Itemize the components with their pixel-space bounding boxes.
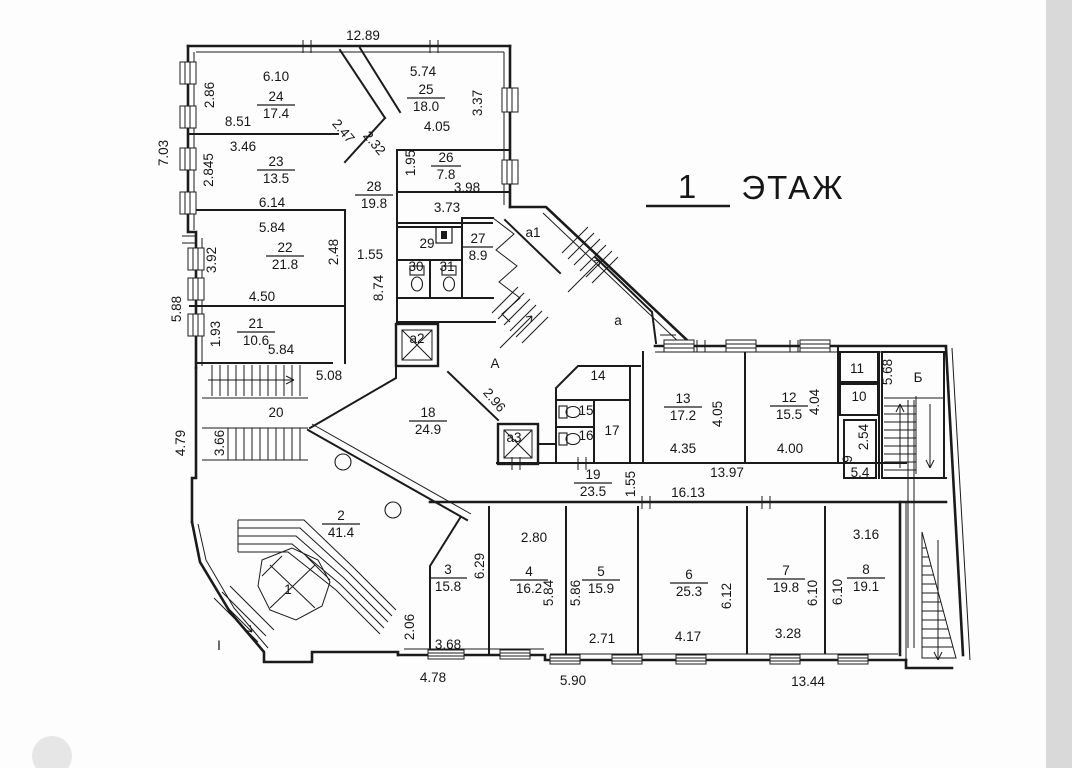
external-stair bbox=[922, 532, 956, 660]
dim-label: 3.92 bbox=[204, 247, 219, 273]
room-number-label: 13 bbox=[675, 391, 690, 406]
room-number-label: 19 bbox=[585, 467, 600, 482]
dim-label: 2.71 bbox=[589, 631, 615, 646]
scan-smudge bbox=[32, 736, 72, 768]
room-area-label: 19.8 bbox=[773, 580, 799, 595]
room-number-label: 8 bbox=[862, 562, 870, 577]
dim-label: 1.93 bbox=[208, 321, 223, 347]
room-number-label: 21 bbox=[248, 316, 263, 331]
room-number-label: 15 bbox=[578, 403, 593, 418]
room-area-label: 10.6 bbox=[243, 333, 269, 348]
dim-label: 4.17 bbox=[675, 629, 701, 644]
toilet-16 bbox=[559, 433, 580, 445]
dim-label: 4.79 bbox=[173, 430, 188, 456]
dim-label: 16.13 bbox=[671, 485, 705, 500]
room-number-label: 4 bbox=[525, 564, 533, 579]
dim-label: 2.845 bbox=[201, 153, 216, 187]
floor-word: ЭТАЖ bbox=[741, 169, 844, 206]
dim-label: 8.74 bbox=[371, 274, 386, 301]
dim-label: 2.86 bbox=[202, 82, 217, 108]
dim-label: 1.55 bbox=[623, 471, 638, 497]
room-number-label: а bbox=[614, 313, 622, 328]
dim-label: 5.74 bbox=[410, 64, 437, 79]
room-number-label: 7 bbox=[782, 563, 790, 578]
dim-label: 3.37 bbox=[470, 90, 485, 116]
room-number-label: а1 bbox=[525, 225, 540, 240]
room-number-label: 29 bbox=[419, 236, 434, 251]
dim-label: 13.97 bbox=[710, 465, 744, 480]
column bbox=[385, 502, 401, 518]
dim-label: 2.32 bbox=[360, 128, 388, 158]
bottom-wall-windows bbox=[428, 650, 868, 664]
dim-label: 1.55 bbox=[357, 247, 383, 262]
dim-label: 6.10 bbox=[830, 579, 845, 605]
dim-label: 3.28 bbox=[775, 626, 801, 641]
dim-label: 3.98 bbox=[454, 180, 480, 195]
room-number-label: 22 bbox=[277, 240, 292, 255]
dim-label: 3.68 bbox=[435, 637, 461, 652]
room-number-label: 12 bbox=[781, 390, 796, 405]
room-area-label: 16.2 bbox=[516, 581, 542, 596]
room-area-label: 17.4 bbox=[263, 106, 290, 121]
floor-number: 1 bbox=[678, 168, 698, 205]
dim-label: 8.51 bbox=[225, 114, 251, 129]
room-number-label: 18 bbox=[420, 405, 435, 420]
dim-label: 9 bbox=[840, 455, 855, 463]
stair-A bbox=[492, 227, 618, 348]
dim-label: 5.84 bbox=[541, 579, 556, 606]
dim-label: 13.44 bbox=[791, 674, 825, 689]
room-number-label: 5 bbox=[597, 564, 605, 579]
entrance-steps bbox=[214, 586, 274, 642]
room-number-label: 10 bbox=[851, 389, 866, 404]
dim-label: 2.48 bbox=[326, 239, 341, 265]
room-area-label: 17.2 bbox=[670, 408, 696, 423]
dim-label: 4.50 bbox=[249, 289, 275, 304]
toilet-15 bbox=[559, 406, 580, 418]
dim-label: 4.35 bbox=[670, 441, 696, 456]
room-number-label: 16 bbox=[578, 428, 593, 443]
dim-label: 2.54 bbox=[856, 423, 871, 450]
dim-label: 3.46 bbox=[230, 139, 256, 154]
room-number-label: Б bbox=[914, 370, 923, 385]
dim-label: 6.29 bbox=[472, 553, 487, 579]
room-number-label: а2 bbox=[409, 331, 424, 346]
room-area-label: 15.9 bbox=[588, 581, 614, 596]
room-number-label: 25 bbox=[418, 82, 433, 97]
sawtooth-wall bbox=[493, 218, 520, 322]
room-area-label: 7.8 bbox=[437, 167, 456, 182]
dim-label: 6.14 bbox=[259, 195, 286, 210]
room-number-label: 27 bbox=[470, 231, 485, 246]
room-number-label: I bbox=[217, 638, 221, 653]
room-area-label: 41.4 bbox=[328, 525, 355, 540]
left-wall-windows bbox=[180, 62, 204, 336]
room-area-label: 8.9 bbox=[469, 248, 488, 263]
dim-label: 2.96 bbox=[480, 385, 508, 415]
room-number-label: 6 bbox=[685, 567, 693, 582]
room-area-label: 19.1 bbox=[853, 579, 879, 594]
room-area-label: 18.0 bbox=[413, 99, 439, 114]
room-number-label: 17 bbox=[604, 423, 619, 438]
room-number-label: 30 bbox=[408, 259, 423, 274]
room-area-label: 15.5 bbox=[776, 407, 802, 422]
dim-label: 5.88 bbox=[169, 296, 184, 322]
room-number-label: 23 bbox=[268, 154, 283, 169]
dim-label: 5.84 bbox=[268, 342, 295, 357]
dim-label: 4.04 bbox=[807, 388, 822, 415]
dim-label: 6.10 bbox=[263, 69, 289, 84]
dim-label: 6.12 bbox=[719, 583, 734, 609]
dim-label: 5.4 bbox=[851, 465, 870, 480]
column bbox=[335, 454, 351, 470]
floor-plan-svg: 1 ЭТАЖ 12.896.105.748.514.053.466.143.98… bbox=[0, 0, 1072, 768]
dim-label: 7.03 bbox=[156, 140, 171, 166]
room-number-label: а3 bbox=[506, 430, 521, 445]
dim-label: 3.66 bbox=[212, 430, 227, 456]
room-number-label: 1 bbox=[284, 582, 292, 597]
wing-top-windows bbox=[664, 340, 830, 352]
dim-label: 12.89 bbox=[346, 28, 380, 43]
room-number-label: 28 bbox=[366, 179, 381, 194]
dim-label: 5.90 bbox=[560, 673, 586, 688]
dim-label: 3.73 bbox=[434, 200, 460, 215]
dim-label: 2.47 bbox=[329, 116, 357, 146]
dim-label: 1.95 bbox=[403, 150, 418, 176]
room-area-label: 21.8 bbox=[272, 257, 298, 272]
dim-label: 4.05 bbox=[710, 401, 725, 427]
dim-label: 2.06 bbox=[402, 614, 417, 640]
dim-label: 4.78 bbox=[420, 670, 446, 685]
dim-label: 5.68 bbox=[880, 359, 895, 385]
floor-plan-page: 1 ЭТАЖ 12.896.105.748.514.053.466.143.98… bbox=[0, 0, 1072, 768]
scan-edge-band bbox=[1046, 0, 1072, 768]
room-number-label: 31 bbox=[439, 259, 454, 274]
dim-label: 4.00 bbox=[777, 441, 803, 456]
room-area-label: 13.5 bbox=[263, 171, 289, 186]
room-number-label: 24 bbox=[268, 89, 284, 104]
partition-walls-layer bbox=[190, 48, 946, 653]
room-number-label: 14 bbox=[590, 368, 606, 383]
room-area-label: 15.8 bbox=[435, 579, 461, 594]
room-area-label: 23.5 bbox=[580, 484, 606, 499]
room-area-label: 24.9 bbox=[415, 422, 441, 437]
room-area-label: 25.3 bbox=[676, 584, 702, 599]
dim-label: 3.16 bbox=[853, 527, 879, 542]
room-number-label: 2 bbox=[337, 508, 345, 523]
room-number-label: 3 bbox=[444, 562, 452, 577]
entrance-tambour bbox=[258, 548, 330, 620]
room-area-label: 19.8 bbox=[361, 196, 387, 211]
room-number-label: 11 bbox=[850, 361, 864, 376]
room-number-label: 26 bbox=[438, 150, 453, 165]
dim-label: 4.05 bbox=[424, 119, 450, 134]
dim-label: 2.80 bbox=[521, 530, 547, 545]
dim-label: 6.10 bbox=[805, 580, 820, 606]
room-number-label: А bbox=[490, 356, 499, 371]
dim-label: 5.08 bbox=[316, 368, 342, 383]
drawing-title: 1 ЭТАЖ bbox=[646, 168, 845, 206]
dim-label: 5.84 bbox=[259, 220, 286, 235]
labels-layer: 12.896.105.748.514.053.466.143.983.735.8… bbox=[156, 28, 923, 689]
room-number-label: 20 bbox=[268, 405, 283, 420]
dim-label: 5.86 bbox=[568, 580, 583, 606]
